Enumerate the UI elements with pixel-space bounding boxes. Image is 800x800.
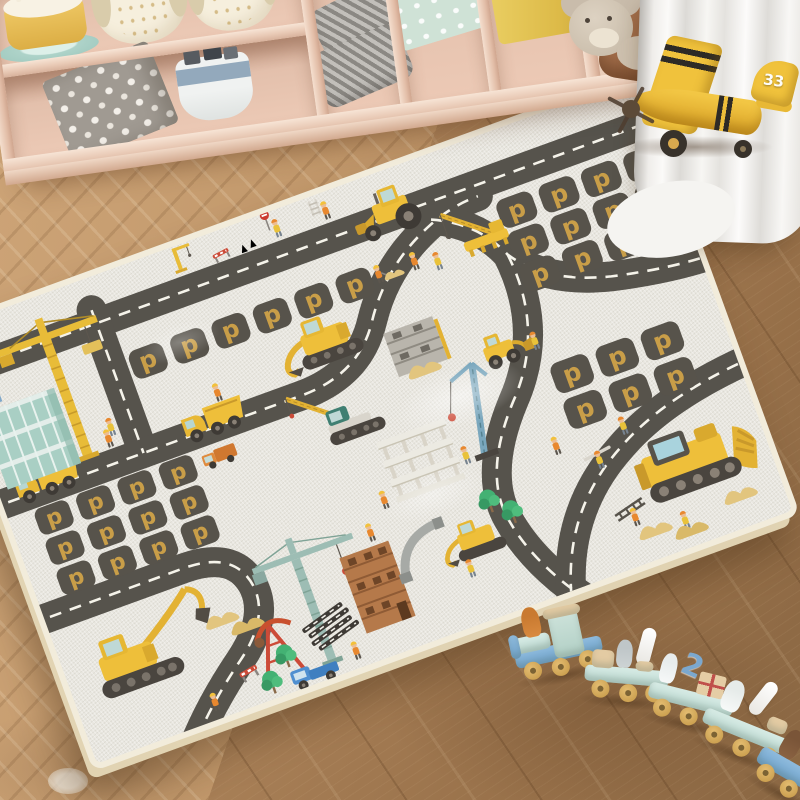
worker-icon [102, 428, 114, 448]
building-frame-icon [376, 418, 466, 503]
yellow-toy-airplane: 33 [606, 38, 800, 168]
playroom-scene: 33 [0, 0, 800, 800]
bear-figure [718, 677, 749, 714]
candle-holder [635, 661, 654, 673]
worker-icon [350, 641, 362, 661]
orange-mini-truck-icon [201, 443, 240, 472]
fox-figure [519, 606, 543, 639]
train-wheel [618, 683, 638, 703]
car-block [591, 649, 614, 669]
tree-icon [257, 667, 286, 697]
cat-figure [657, 652, 680, 685]
worker-icon [378, 490, 390, 510]
toy-block [223, 46, 239, 60]
sand-pile [637, 518, 674, 541]
worker-icon [364, 522, 376, 542]
ladder-lifter-worker-icon [612, 496, 652, 532]
worker-icon [464, 558, 476, 578]
worker-icon [211, 382, 223, 402]
teddy-eye [585, 18, 590, 23]
sand-pile [722, 483, 759, 506]
teddy-eye [607, 16, 612, 21]
propeller-spinner [622, 100, 640, 118]
mini-crane-icon [168, 243, 197, 274]
train-wheel [591, 679, 611, 699]
scaffold-building-icon [383, 315, 454, 384]
mouse-figure [615, 639, 633, 668]
tree-icon [271, 641, 300, 671]
worker-icon [550, 436, 562, 456]
plane-rear-wheel [734, 140, 752, 158]
plane-fuselage-stripes [714, 95, 736, 132]
worker-icon [459, 445, 471, 465]
plane-tail-number: 33 [762, 70, 785, 91]
plane-front-wheel [660, 130, 687, 157]
sand-pile [673, 518, 710, 541]
worker-icon [431, 251, 443, 271]
stop-sign-worker-icon [258, 207, 282, 240]
candle-piece [746, 679, 780, 718]
wooden-animal-train: 2 [505, 598, 800, 800]
floor-sticker [48, 768, 88, 794]
scaffold-icon [0, 378, 1, 411]
ladder-workers-icon [307, 196, 331, 224]
